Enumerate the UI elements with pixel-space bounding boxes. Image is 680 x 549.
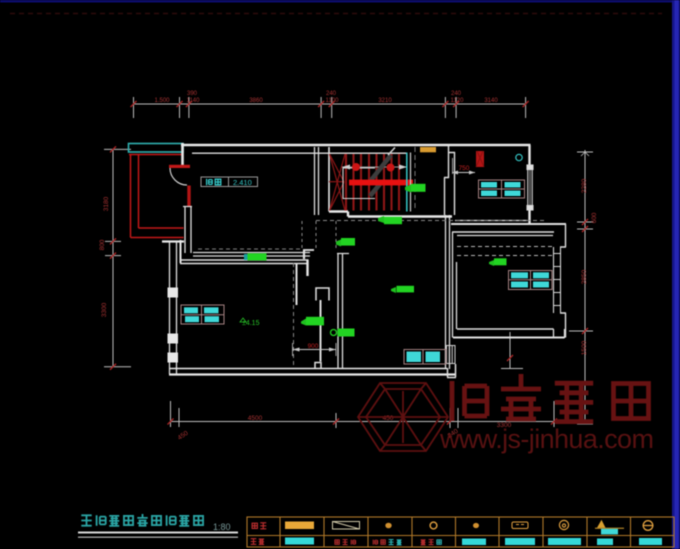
svg-text:1:80: 1:80: [213, 522, 231, 532]
svg-text:4500: 4500: [248, 415, 263, 422]
svg-text:3180: 3180: [103, 196, 110, 211]
svg-text:1140: 1140: [187, 98, 201, 104]
svg-text:240: 240: [451, 91, 462, 97]
svg-text:3140: 3140: [484, 98, 498, 104]
svg-text:800: 800: [99, 239, 106, 250]
svg-text:www.js-jinhua.com: www.js-jinhua.com: [439, 424, 653, 454]
svg-text:3860: 3860: [249, 98, 263, 104]
svg-text:750: 750: [459, 165, 470, 172]
svg-text:2.410: 2.410: [233, 178, 252, 187]
svg-text:1.500: 1.500: [154, 98, 170, 104]
svg-text:2280: 2280: [581, 178, 588, 193]
svg-text:900: 900: [308, 343, 319, 350]
svg-text:3210: 3210: [378, 98, 392, 104]
svg-text:2850: 2850: [581, 269, 588, 284]
svg-text:390: 390: [187, 91, 198, 97]
svg-text:450: 450: [383, 415, 394, 422]
svg-text:240: 240: [326, 91, 337, 97]
svg-text:1500: 1500: [581, 340, 588, 355]
svg-text:1100: 1100: [326, 98, 340, 104]
svg-text:3300: 3300: [101, 302, 108, 317]
svg-text:±4.15: ±4.15: [242, 320, 260, 327]
svg-text:600: 600: [591, 212, 598, 223]
svg-text:1120: 1120: [451, 98, 465, 104]
